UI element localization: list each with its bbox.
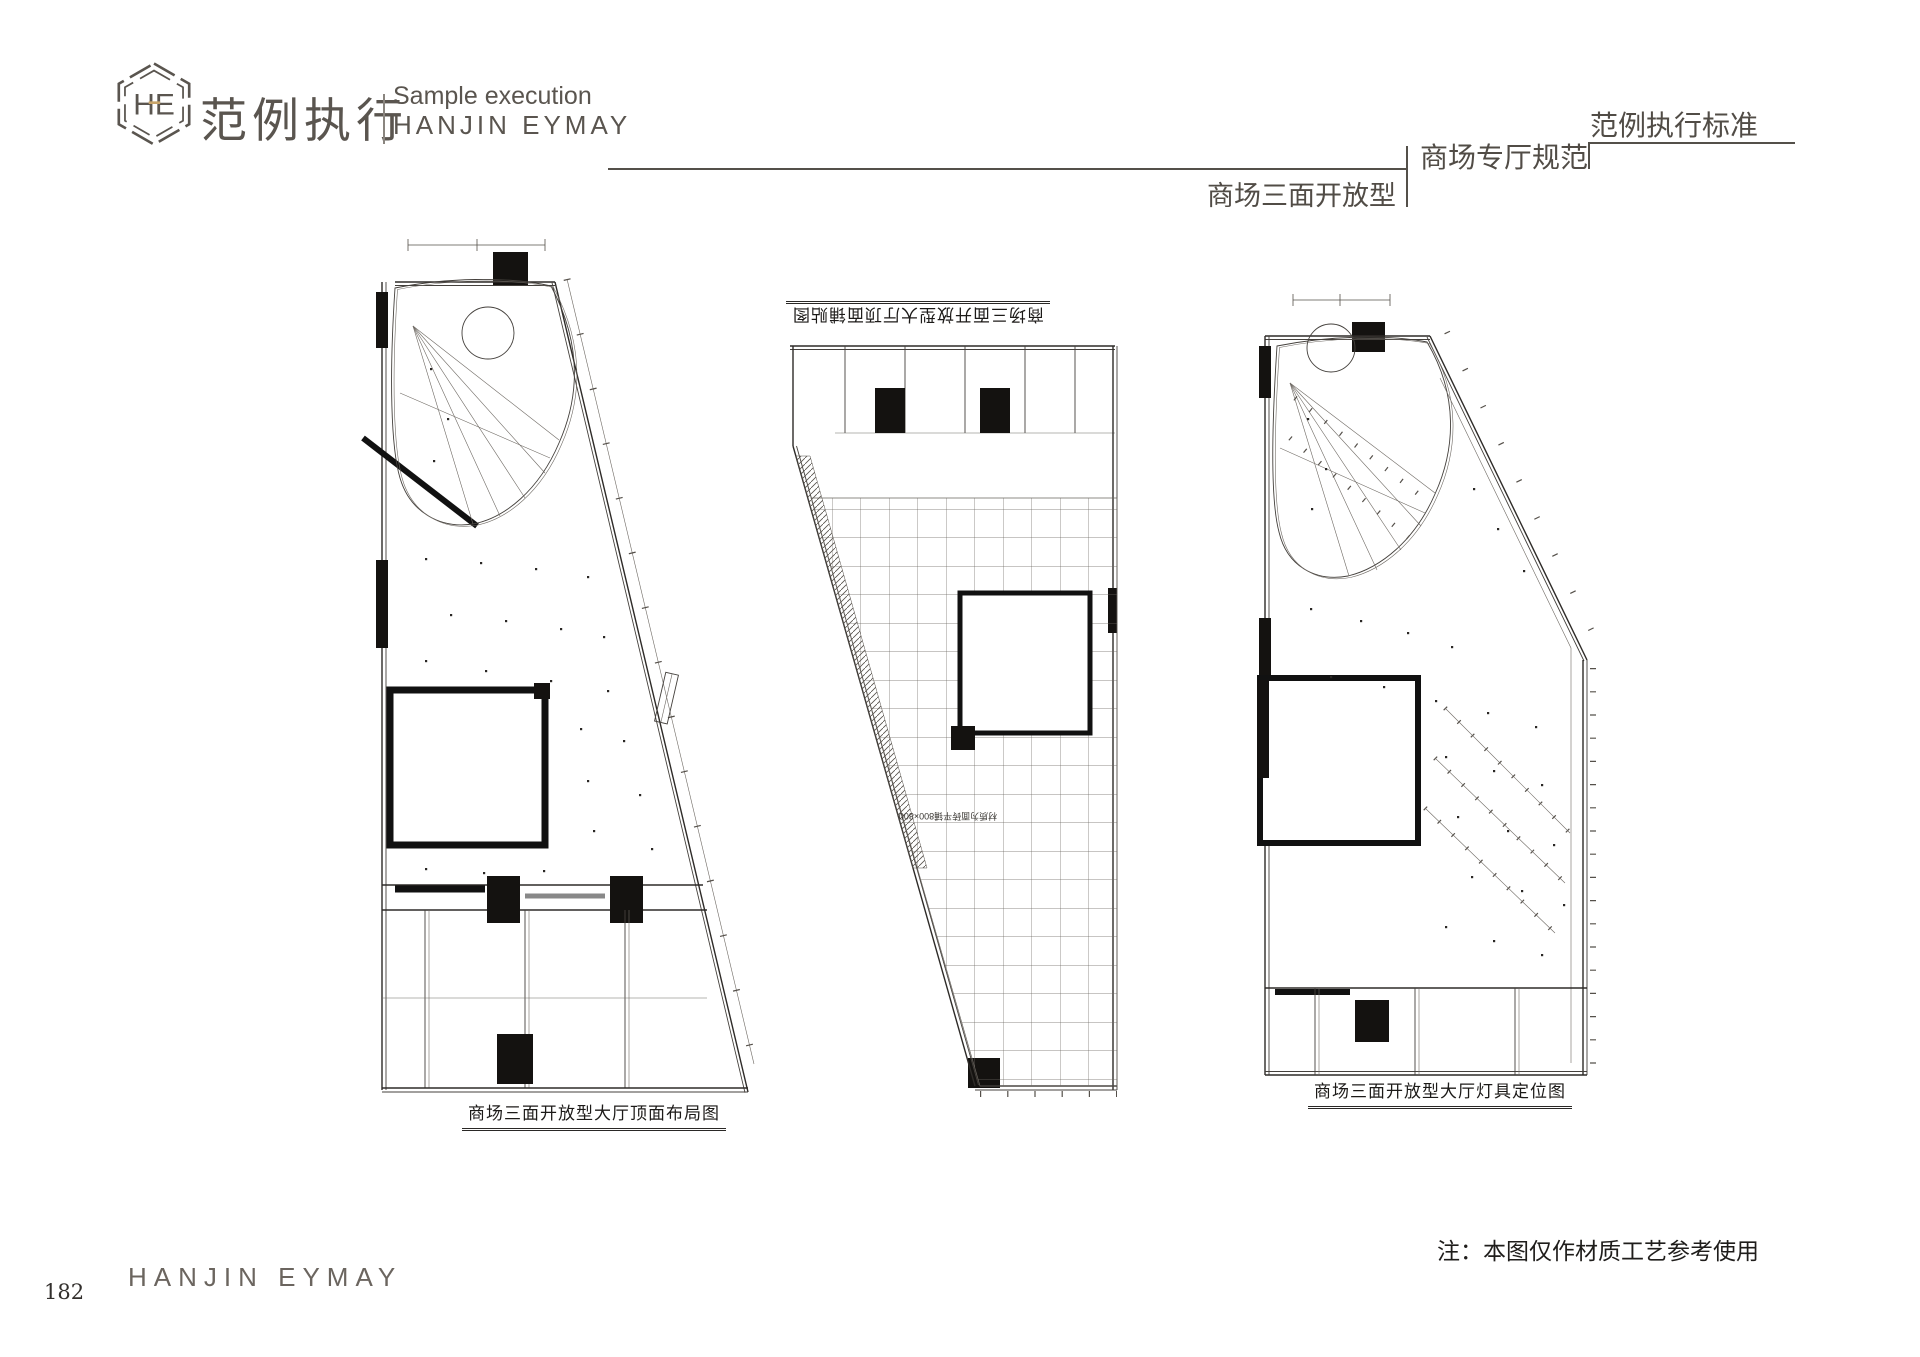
hanjin-eymay-logo-icon: HE [110, 58, 198, 150]
reference-note: 注：本图仅作材质工艺参考使用 [1437, 1232, 1759, 1266]
left-drawing-caption: 商场三面开放型大厅顶面布局图 [462, 1099, 726, 1131]
brand-name-cn: 范例执行 [200, 82, 408, 151]
lighting-positioning-drawing [1235, 288, 1600, 1083]
ceiling-layout-drawing [355, 228, 755, 1098]
page-number: 182 [44, 1280, 84, 1304]
section-label: 商场专厅规范 [1420, 136, 1588, 176]
standard-underline-stub [1588, 142, 1590, 169]
standard-underline [1588, 142, 1795, 144]
tile-spec-annotation: 材质为面砖平铺800×800 [899, 811, 997, 822]
logo-divider [383, 94, 385, 144]
logo-gold-dash [149, 101, 160, 104]
ceiling-tiling-drawing: 材质为面砖平铺800×800 [775, 338, 1120, 1098]
logo-monogram: HE [133, 89, 175, 122]
header-rule-tick [1406, 146, 1408, 207]
page-title: 商场三面开放型 [1106, 174, 1396, 213]
middle-caption-block: 商场三面开放型大厅顶面铺贴图 [786, 301, 1050, 333]
manual-page: HE 范例执行 Sample execution HANJIN EYMAY 范例… [0, 0, 1920, 1357]
standard-label: 范例执行标准 [1560, 104, 1758, 144]
footer-brand: HANJIN EYMAY [128, 1262, 402, 1293]
brand-name-en: HANJIN EYMAY [393, 110, 631, 141]
right-drawing-caption: 商场三面开放型大厅灯具定位图 [1308, 1077, 1572, 1109]
tagline-en: Sample execution [393, 82, 592, 111]
middle-drawing-caption: 商场三面开放型大厅顶面铺贴图 [786, 304, 1050, 333]
header-rule [608, 168, 1407, 170]
